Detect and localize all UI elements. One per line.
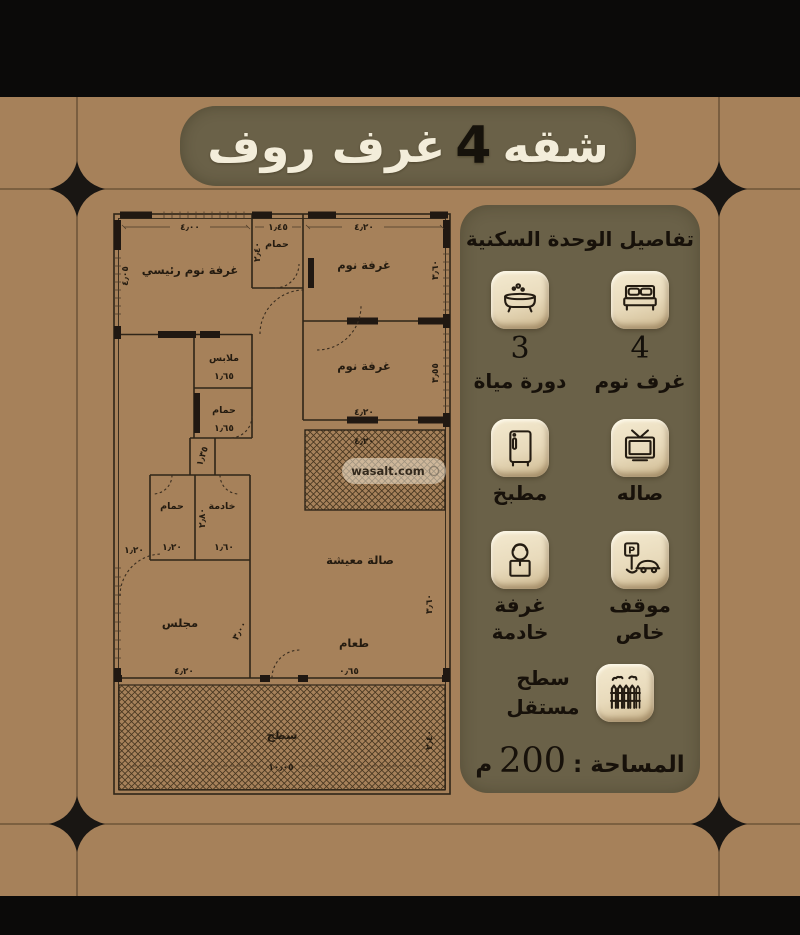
dimension-label: ٣٫٦٠ [431,260,441,280]
area-unit: م [475,752,492,778]
parking-letter: P [628,545,635,556]
bathtub-icon [499,279,541,321]
roof-label-line1: سطح [506,664,579,693]
area-label: المساحة : [573,752,685,778]
bathrooms-tile [491,271,549,329]
parking-tile: P [611,531,669,589]
parking-label: موقف خاص [609,592,671,646]
room-label: طعام [339,636,369,650]
dimension-label: ٤٫٠٥ [121,266,131,286]
flyer-root: شقه 4 غرف روف [0,0,800,935]
feature-roof: سطح مستقل [460,664,700,722]
feature-bedrooms: 4 غرف نوم [595,271,686,395]
watermark: wasalt.com [342,458,446,484]
dimension-label: ٣٫٠٠ [231,620,249,642]
room-label: سطح [267,728,298,742]
dimension-label: ٤٫٢٠ [354,437,374,447]
room-label: غرفة نوم رئيسي [142,263,238,278]
maid-room-tile [491,531,549,589]
dimension-label: ١٫٢٠ [162,543,182,553]
dimension-label: ٢٫٨٠ [198,508,208,528]
fridge-icon [499,427,541,469]
room-label: صالة معيشة [326,553,394,567]
room-label: حمام [212,405,236,416]
fence-icon [604,672,646,714]
watermark-text: wasalt.com [351,464,425,478]
title-banner: شقه 4 غرف روف [180,106,636,186]
title-word-left: غرف روف [207,119,445,173]
parking-label-line1: موقف [609,592,671,619]
bedrooms-label: غرف نوم [595,368,686,395]
dimension-label: ٤٫٢٠ [174,667,194,677]
details-panel: تفاصيل الوحدة السكنية 4 غرف نو [460,205,700,793]
roof-label: سطح مستقل [506,664,579,722]
feature-hall: صاله [611,419,669,507]
room-label: حمام [265,239,289,250]
room-label: غرفة نوم [337,359,390,374]
star-icon [691,796,747,852]
room-label: حمام [160,501,184,512]
area-row: المساحة : 200 م [460,744,700,779]
star-icon [49,161,105,217]
dimension-label: ٢٫٤٠ [253,242,263,262]
dimension-label: ١٫٤٥ [268,223,288,233]
title-number: 4 [455,116,492,176]
hall-label: صاله [617,480,663,507]
feature-kitchen: مطبخ [491,419,549,507]
dimension-label: ١٠٫٠٥ [268,763,293,773]
dimension-label: ٠٫٦٥ [339,667,359,677]
kitchen-tile [491,419,549,477]
dimension-label: ١٫٣٥ [195,445,211,467]
feature-parking: P موقف خاص [609,531,671,646]
bathrooms-count: 3 [510,333,529,365]
star-icon [691,161,747,217]
area-value: 200 [499,744,566,779]
panel-heading: تفاصيل الوحدة السكنية [460,227,700,251]
bathrooms-label: دورة مياة [474,368,567,395]
room-label: ملابس [209,353,239,364]
bed-icon [619,279,661,321]
parking-icon: P [619,539,661,581]
kitchen-label: مطبخ [493,480,547,507]
tv-icon [619,427,661,469]
dimension-label: ٤٫٢٠ [354,408,374,418]
roof-label-line2: مستقل [506,693,579,722]
letterbox-bottom [0,896,800,935]
dimension-label: ٤٫٠٠ [180,223,200,233]
bedrooms-count: 4 [630,333,649,365]
dimension-label: ١٫٢٠ [124,546,144,556]
star-icon [49,796,105,852]
dimension-label: ١٫٦٥ [214,372,234,382]
room-label: خادمة [209,501,236,512]
dimension-label: ٤٫٢٠ [354,223,374,233]
floor-plan: غرفة نوم رئيسي حمام غرفة نوم غرفة نوم مل… [112,208,452,800]
hall-tile [611,419,669,477]
parking-label-line2: خاص [609,619,671,646]
dimension-label: ١٫٦٥ [214,424,234,434]
dimension-label: ٣٫٥٥ [431,363,441,383]
feature-grid: 4 غرف نوم 3 دورة مياة [460,271,700,646]
maid-room-label-line2: خادمة [492,619,549,646]
maid-room-label: غرفة خادمة [492,592,549,646]
title-word-right: شقه [502,119,608,173]
dimension-label: ١٫٦٠ [214,543,234,553]
maid-room-label-line1: غرفة [492,592,549,619]
feature-maid-room: غرفة خادمة [491,531,549,646]
room-label: غرفة نوم [337,258,390,273]
dimension-label: ٣٫٦٠ [425,594,435,614]
feature-bathrooms: 3 دورة مياة [474,271,567,395]
maid-icon [499,539,541,581]
room-label: مجلس [162,616,198,630]
letterbox-top [0,0,800,97]
bedrooms-tile [611,271,669,329]
dimension-label: ٢٫٤٠ [425,730,435,750]
roof-tile [596,664,654,722]
